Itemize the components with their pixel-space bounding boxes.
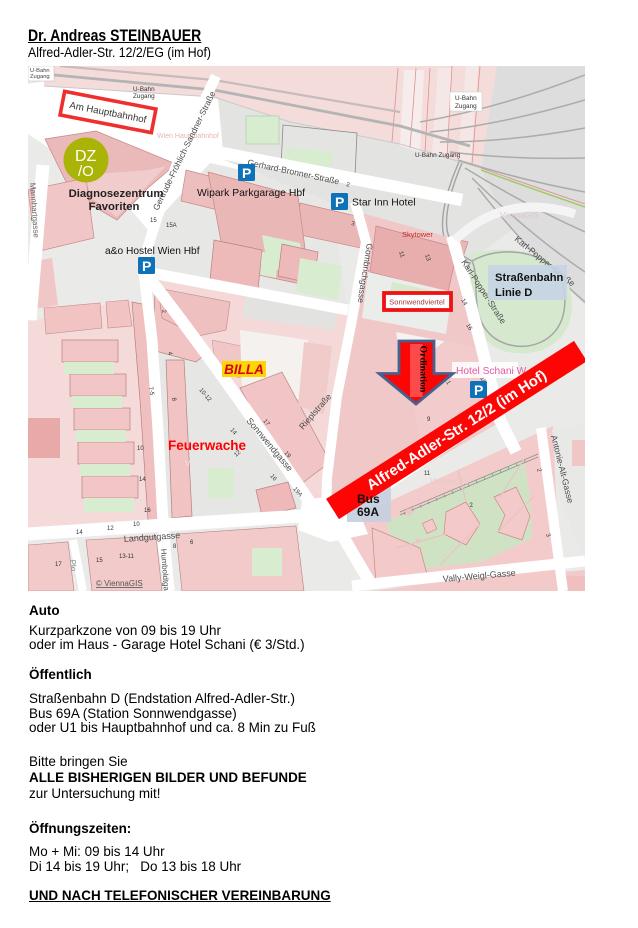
svg-text:Favoriten: Favoriten xyxy=(89,201,140,213)
svg-text:U-Bahn: U-Bahn xyxy=(455,95,477,102)
svg-text:Skytower: Skytower xyxy=(402,230,433,239)
svg-text:17: 17 xyxy=(55,562,62,568)
svg-text:15A: 15A xyxy=(166,223,177,229)
svg-text:12: 12 xyxy=(107,526,114,532)
svg-text:P: P xyxy=(335,194,344,210)
svg-text:© ViennaGIS: © ViennaGIS xyxy=(96,579,143,588)
svg-text:15: 15 xyxy=(96,558,103,564)
svg-text:Bus: Bus xyxy=(357,492,380,506)
svg-text:P: P xyxy=(474,382,483,398)
svg-text:ViennaGIS: ViennaGIS xyxy=(185,459,224,468)
svg-text:ViennaGIS: ViennaGIS xyxy=(430,477,469,486)
svg-text:11: 11 xyxy=(424,471,431,477)
svg-text:15: 15 xyxy=(150,218,157,224)
svg-text:10: 10 xyxy=(133,522,140,528)
svg-text:P: P xyxy=(242,165,251,181)
svg-text:Sonnwendviertel: Sonnwendviertel xyxy=(389,298,445,307)
svg-text:Linie D: Linie D xyxy=(495,287,532,299)
svg-text:Hotel Schani W: Hotel Schani W xyxy=(456,366,527,377)
svg-text:69A: 69A xyxy=(357,505,379,519)
svg-text:Wipark Parkgarage Hbf: Wipark Parkgarage Hbf xyxy=(197,188,305,199)
svg-text:Zugang: Zugang xyxy=(133,93,155,100)
svg-text:Zugang: Zugang xyxy=(30,74,50,80)
svg-text:13-11: 13-11 xyxy=(119,554,135,560)
svg-text:U-Bahn: U-Bahn xyxy=(133,86,155,93)
svg-text:BILLA: BILLA xyxy=(224,362,264,377)
svg-text:Zugang: Zugang xyxy=(455,103,477,110)
svg-text:Ordination: Ordination xyxy=(418,346,429,393)
svg-text:Feuerwache: Feuerwache xyxy=(168,438,247,453)
svg-text:/O: /O xyxy=(78,163,94,180)
svg-text:Diagnosezentrum: Diagnosezentrum xyxy=(69,188,164,200)
svg-text:14: 14 xyxy=(139,477,146,483)
svg-text:Plo: Plo xyxy=(68,559,78,572)
svg-text:16: 16 xyxy=(144,508,151,514)
svg-text:Star Inn Hotel: Star Inn Hotel xyxy=(352,198,416,209)
svg-text:U-Bahn Zugang: U-Bahn Zugang xyxy=(415,152,461,159)
svg-text:a&o Hostel Wien Hbf: a&o Hostel Wien Hbf xyxy=(105,246,200,257)
svg-text:10: 10 xyxy=(137,446,144,452)
svg-text:P: P xyxy=(142,258,151,274)
svg-text:Straßenbahn: Straßenbahn xyxy=(495,272,564,284)
svg-text:ViennaGIS: ViennaGIS xyxy=(500,211,539,220)
svg-text:14: 14 xyxy=(76,530,83,536)
